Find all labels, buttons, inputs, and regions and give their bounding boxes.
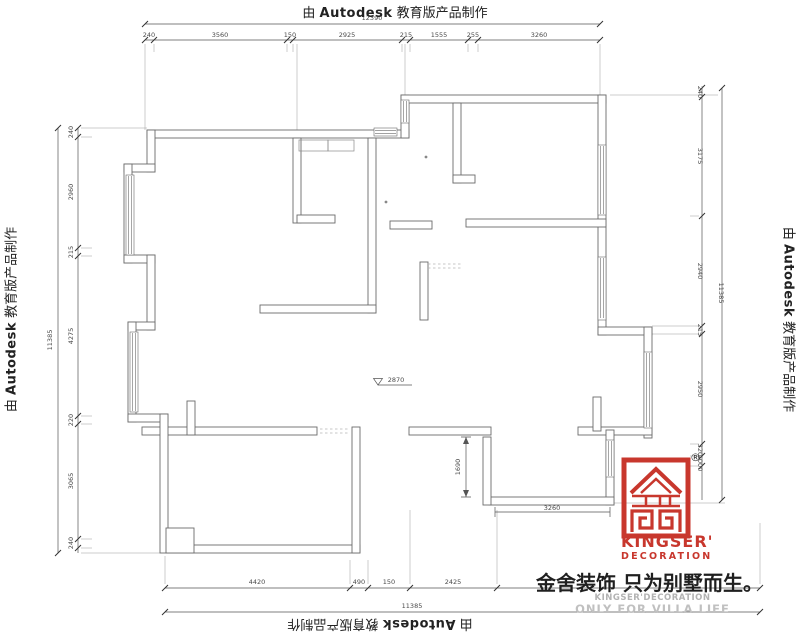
level-marker: 2870 [374, 376, 413, 385]
dim-right-seg-3: 215 [696, 324, 704, 336]
dim-top-seg-4: 215 [400, 31, 412, 39]
dim-top-seg-6: 255 [467, 31, 479, 39]
logo-brand-name: KINGSER' [621, 532, 714, 551]
dim-top-seg-1: 3560 [212, 31, 229, 39]
kingser-logo-emblem [624, 460, 688, 536]
dim-top-seg-5: 1555 [431, 31, 448, 39]
registered-trademark-icon: ® [690, 451, 701, 464]
dim-bottom-total: 11385 [402, 602, 423, 610]
dim-right-seg-4: 2950 [696, 381, 704, 398]
dim-left-seg-3: 4275 [67, 328, 75, 345]
column-grid-dots [385, 156, 428, 204]
dim-interior-vertical: 1690 [454, 437, 471, 497]
dim-chain-right: 11385 240 3175 2940 215 2950 320 1000 [696, 85, 725, 503]
door-openings [320, 264, 462, 433]
dim-left-seg-0: 240 [67, 126, 75, 138]
dim-right-seg-2: 2940 [696, 263, 704, 280]
dim-top-seg-7: 3260 [531, 31, 548, 39]
dim-left-seg-2: 215 [67, 246, 75, 258]
wardrobe-symbol [299, 140, 354, 151]
dim-right-total: 11385 [717, 283, 725, 304]
dim-right-seg-1: 3175 [696, 148, 704, 165]
dim-room-width: 3260 [544, 504, 561, 512]
dim-top-seg-0: 240 [143, 31, 155, 39]
walls-exterior [124, 95, 652, 553]
dim-left-total: 11385 [46, 330, 54, 351]
autodesk-watermark-top: 由 Autodesk 教育版产品制作 [145, 2, 645, 21]
dim-left-seg-4: 220 [67, 414, 75, 426]
dim-bottom-seg-2: 150 [383, 578, 395, 586]
logo-tagline-cn: 金舍装饰 只为别墅而生。 [536, 567, 776, 596]
dim-top-seg-2: 150 [284, 31, 296, 39]
autodesk-watermark-bottom: 由 Autodesk 教育版产品制作 [130, 616, 630, 635]
dim-chain-left: 11385 240 2960 215 4275 220 3065 240 [46, 125, 81, 556]
logo-brand-name2: DECORATION [621, 551, 712, 562]
logo-sub-en2: ONLY FOR VILLA LIFE [560, 602, 745, 616]
autodesk-watermark-right: 由 Autodesk 教育版产品制作 [781, 75, 800, 565]
window-symbols [126, 100, 652, 477]
dim-bottom-seg-3: 2425 [445, 578, 462, 586]
dim-bottom-seg-1: 490 [353, 578, 365, 586]
dim-bottom-seg-0: 4420 [249, 578, 266, 586]
dim-left-seg-5: 3065 [67, 473, 75, 490]
dim-top-seg-3: 2925 [339, 31, 356, 39]
level-value: 2870 [388, 376, 405, 384]
dim-room-height: 1690 [454, 459, 462, 476]
dim-interior-horizontal: 3260 [495, 504, 610, 517]
dim-left-seg-1: 2960 [67, 184, 75, 201]
cad-drawing-canvas: 由 Autodesk 教育版产品制作 由 Autodesk 教育版产品制作 由 … [0, 0, 800, 640]
dim-left-seg-6: 240 [67, 537, 75, 549]
autodesk-watermark-left: 由 Autodesk 教育版产品制作 [1, 75, 20, 565]
dim-right-seg-0: 240 [696, 86, 704, 98]
